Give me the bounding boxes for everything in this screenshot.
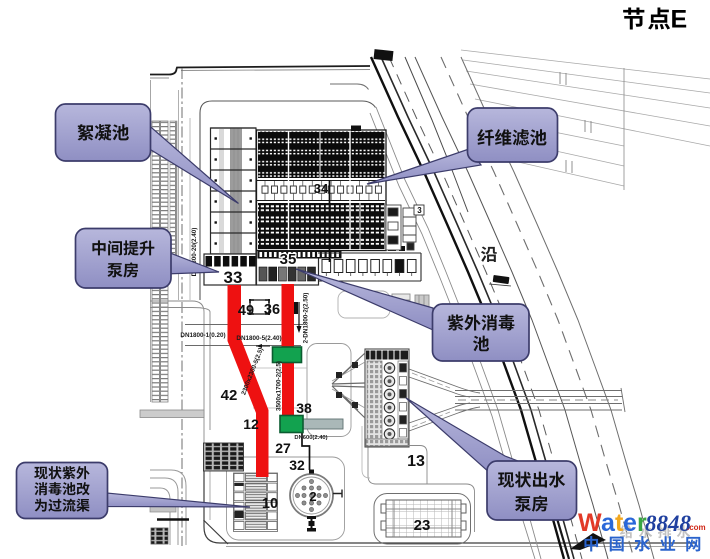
svg-text:34: 34 [314, 181, 329, 196]
svg-text:2-DN1800-2(2.50): 2-DN1800-2(2.50) [303, 293, 310, 344]
svg-text:36: 36 [264, 302, 280, 318]
svg-text:33: 33 [224, 268, 243, 287]
svg-text:a: a [601, 509, 616, 537]
svg-text:10: 10 [262, 496, 278, 512]
svg-text:13: 13 [407, 453, 425, 470]
svg-text:3500x1700-2(2.5): 3500x1700-2(2.5) [276, 361, 283, 411]
svg-text:DN1800-5(2.40): DN1800-5(2.40) [236, 335, 281, 342]
svg-text:8848: 8848 [645, 511, 692, 536]
svg-text:38: 38 [296, 400, 312, 416]
svg-text:2: 2 [309, 489, 316, 504]
svg-text:3: 3 [417, 206, 422, 215]
svg-text:DN600(2.40): DN600(2.40) [294, 435, 327, 441]
svg-text:.com: .com [687, 523, 706, 532]
svg-text:12: 12 [243, 416, 259, 432]
svg-text:DN1800-1(0.20): DN1800-1(0.20) [180, 332, 225, 339]
svg-text:49: 49 [238, 303, 254, 319]
svg-text:42: 42 [221, 387, 238, 404]
svg-text:W: W [578, 509, 602, 537]
svg-text:27: 27 [275, 440, 291, 456]
svg-text:e: e [623, 509, 637, 537]
svg-text:35: 35 [280, 251, 297, 268]
svg-text:23: 23 [414, 517, 431, 534]
svg-text:E: E [671, 6, 688, 34]
svg-text:32: 32 [289, 457, 305, 473]
